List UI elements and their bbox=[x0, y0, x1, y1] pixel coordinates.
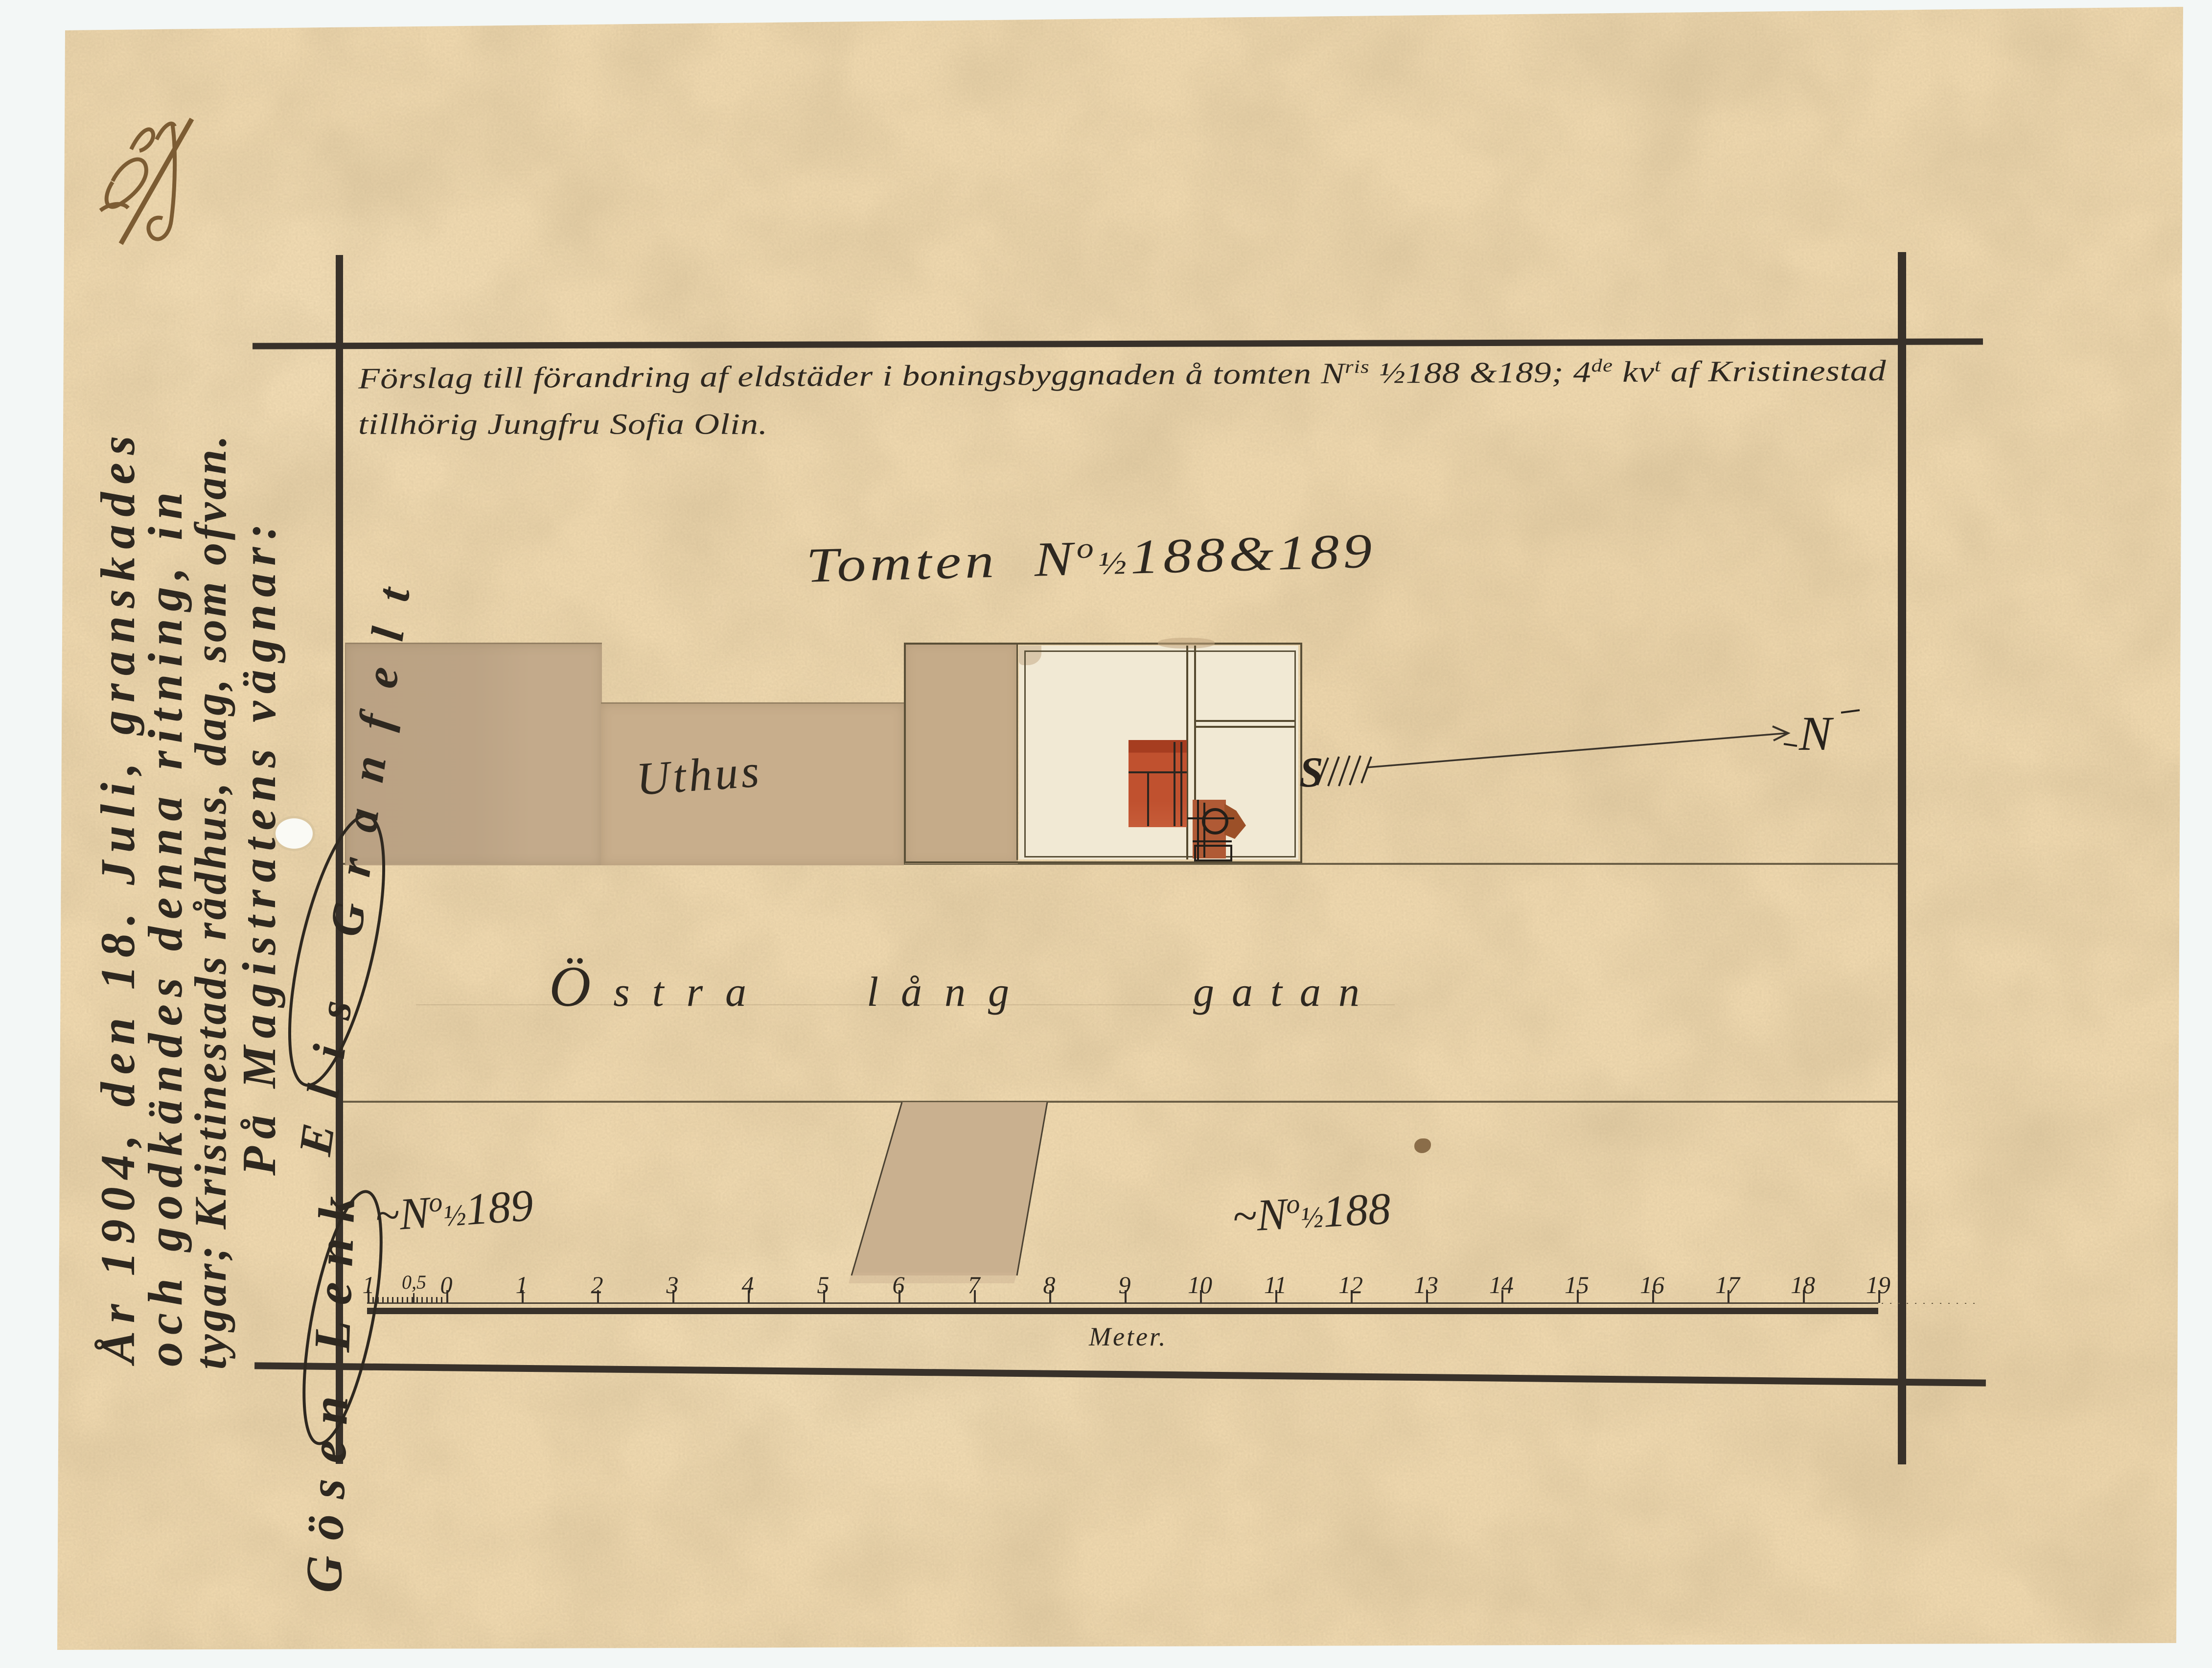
svg-text:N: N bbox=[1798, 706, 1834, 761]
svg-text:S: S bbox=[1299, 749, 1323, 796]
